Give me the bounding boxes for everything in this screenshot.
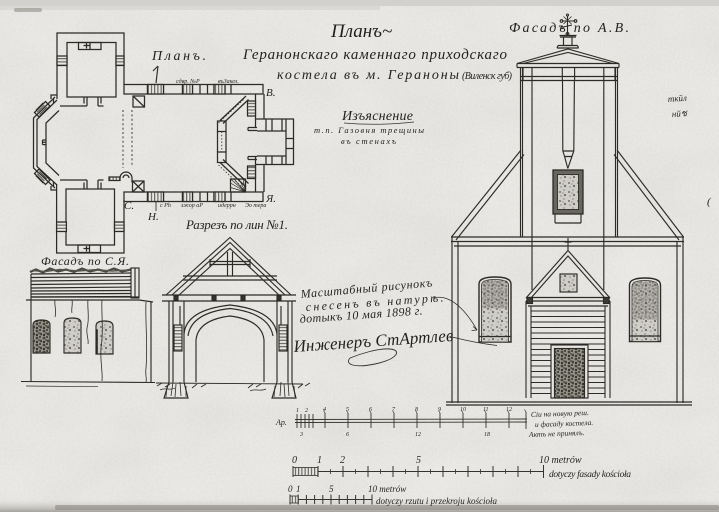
svg-text:В.: В. [266,87,275,99]
svg-text:идеррн: идеррн [218,202,236,209]
svg-text:9: 9 [438,407,441,413]
svg-text:dotyczy fasady kościoła: dotyczy fasady kościoła [549,469,631,480]
svg-text:Фасадъ по С.Я.: Фасадъ по С.Я. [41,254,129,268]
svg-text:нйช: нйช [671,108,689,119]
svg-text:С.: С. [124,200,134,212]
svg-text:ткйл: ткйл [667,93,687,104]
svg-text:12: 12 [415,432,421,438]
svg-text:зжор аР: зжор аР [180,203,203,209]
svg-text:2: 2 [305,408,308,414]
svg-text:Эо тера: Эо тера [245,203,266,209]
svg-text:2: 2 [340,455,345,466]
svg-text:12: 12 [506,407,512,413]
svg-text:5: 5 [416,455,421,466]
svg-text:Изъяснение: Изъяснение [341,109,413,124]
svg-text:въ стенахъ: въ стенахъ [341,136,397,146]
svg-text:3: 3 [299,432,303,438]
svg-text:1: 1 [317,455,322,466]
svg-text:костела въ м. Гераноны: костела въ м. Гераноны [277,68,459,83]
svg-text:Н.: Н. [147,211,159,223]
svg-text:1: 1 [296,408,299,414]
svg-text:т.п. Газовня трещины: т.п. Газовня трещины [314,125,424,135]
svg-text:18: 18 [484,432,490,438]
svg-text:6: 6 [346,432,349,438]
svg-text:Планъ.: Планъ. [151,49,206,64]
svg-text:0: 0 [288,484,293,494]
svg-text:Разрезъ по лин №1.: Разрезъ по лин №1. [185,217,288,232]
svg-text:с Рh: с Рh [160,203,171,209]
svg-text:8: 8 [415,407,418,413]
svg-text:(Виленск губ): (Виленск губ) [462,71,513,82]
svg-text:0: 0 [292,455,297,466]
svg-text:5: 5 [346,407,349,413]
svg-text:сдвр. №Р: сдвр. №Р [176,78,200,85]
svg-text:5: 5 [329,484,334,494]
svg-text:Я.: Я. [265,193,276,205]
svg-text:Геранонскаго каменнаго приходс: Геранонскаго каменнаго приходскаго [242,47,508,63]
svg-text:Ар.: Ар. [275,418,287,427]
svg-text:1: 1 [296,484,301,494]
svg-text:Планъ~: Планъ~ [330,21,392,42]
svg-text:6: 6 [369,407,372,413]
svg-text:10: 10 [460,407,466,413]
svg-text:dotyczy rzutu i przekroju kośc: dotyczy rzutu i przekroju kościoła [376,496,498,506]
svg-text:10 metrów: 10 metrów [539,455,582,466]
svg-text:10 metrów: 10 metrów [368,484,406,494]
svg-text:въЗакел.: въЗакел. [218,79,239,85]
svg-text:4: 4 [323,406,326,413]
svg-text:11: 11 [483,407,489,413]
